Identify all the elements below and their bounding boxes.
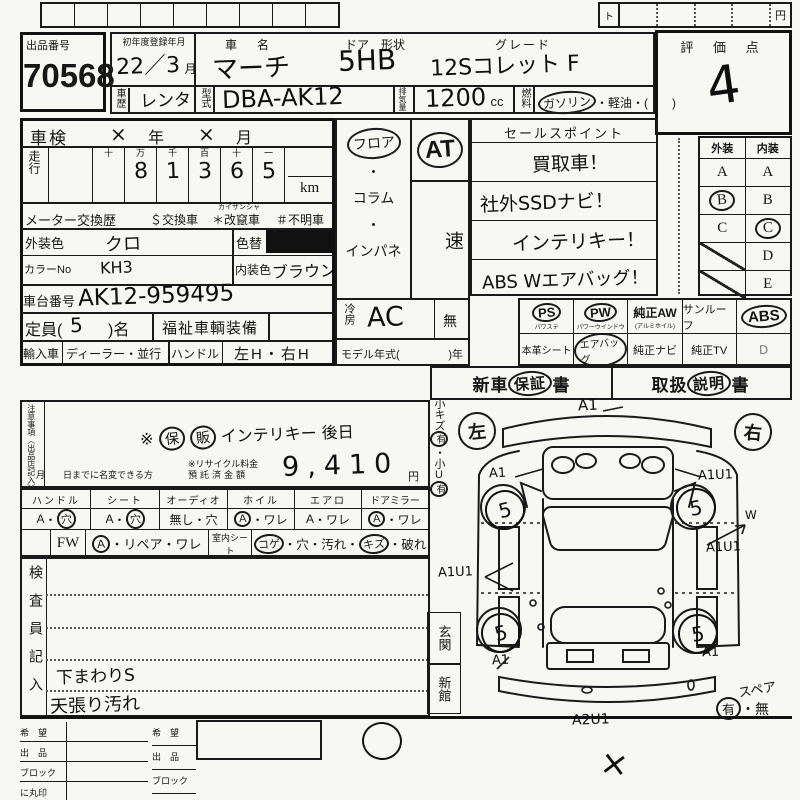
divider	[152, 312, 154, 340]
mileage-cell-blank	[48, 146, 93, 202]
opt: ワレ	[326, 511, 350, 528]
sales-line-text: ABS Wエアバッグ！	[482, 263, 649, 295]
fw-a-circled: A	[92, 534, 111, 553]
fuel-gasoline-circled: ガソリン	[537, 89, 596, 116]
small-scratch-strip: 小キズ有・小U有	[430, 398, 448, 578]
opt: A	[306, 512, 314, 526]
cond-aero-options: A・ワレ	[295, 509, 362, 529]
divider	[20, 340, 335, 342]
digit-header: 一	[253, 146, 284, 159]
block-row-label: ブロック	[152, 770, 196, 794]
sep: ・	[45, 511, 57, 528]
note-ho-circled: 保	[157, 425, 185, 452]
grade-ext-D-slashed	[700, 243, 746, 270]
aircon-none: 無	[443, 311, 457, 331]
cond-blank-cell	[22, 530, 51, 557]
mileage-cell: 十	[93, 146, 125, 202]
recycle-fee-value: 9,410	[281, 448, 399, 483]
seat-opt: ・穴・	[284, 534, 322, 553]
sales-line-text: インテリキー！	[512, 225, 646, 257]
equip-d-mark: D	[759, 342, 769, 356]
block-choice-group-2: 希 望 出 品 ブロック に丸印	[152, 722, 196, 800]
equip-navi-label: 純正ナビ	[633, 342, 677, 358]
shift-column: コラム	[337, 185, 410, 212]
opt-circled: 穴	[56, 508, 76, 529]
score-box: 評 価 点 4	[655, 30, 792, 135]
sep: ・	[314, 511, 326, 528]
equip-abs: ABS	[737, 300, 790, 333]
equip-pw: PW パワーウインドウ	[574, 300, 628, 333]
color-change-label: 色替	[236, 233, 262, 252]
bottom-cross-mark: ×	[597, 742, 631, 786]
dot: ・	[741, 701, 755, 717]
mileage-cell: 十 6	[221, 146, 253, 202]
car-name-value: マーチ	[211, 47, 290, 87]
damage-rear-right: A1	[702, 645, 720, 661]
displacement-unit: cc	[491, 94, 504, 109]
equip-aw: 純正AW (アルミホイル)	[628, 300, 682, 333]
divider	[20, 202, 335, 204]
capacity-pre: 定員(	[25, 316, 62, 340]
grade-int-E: E	[746, 271, 791, 298]
top-price-strip: ト 円	[598, 2, 792, 28]
equip-airbag-circled: エアバッグ	[573, 331, 628, 369]
divider	[20, 312, 335, 314]
first-reg-value: 22／3 月	[116, 48, 196, 80]
inspector-note-2: 天張り汚れ	[50, 689, 141, 718]
opt-circled: 穴	[125, 508, 145, 529]
block-row-label: ブロック	[20, 762, 66, 781]
equip-airbag: エアバッグ	[574, 334, 628, 365]
equip-ps-sub: パワステ	[535, 322, 559, 331]
divider	[513, 85, 515, 114]
warranty-pre: 新車	[472, 371, 508, 396]
small-dent-yes-circled: 有	[429, 480, 448, 497]
cond-header-wheel: ホイル	[228, 490, 295, 508]
sep: ・	[252, 511, 264, 528]
block-row-label: 希 望	[152, 722, 196, 746]
sales-line: ABS Wエアバッグ！	[472, 259, 656, 298]
top-grid-cell	[75, 4, 108, 26]
model-code-value: DBA-AK12	[222, 82, 345, 114]
block-row-cell	[66, 722, 148, 741]
grade-ext-A: A	[700, 159, 746, 186]
color-no-value: KH3	[100, 257, 133, 277]
auction-sheet: ト 円 出品番号 70568 初年度登録年月 22／3 月 車歴 レンタ 車 名…	[0, 0, 800, 800]
shaken-year-mark: ×	[110, 122, 128, 147]
equip-pw-sub: パワーウインドウ	[577, 322, 625, 331]
equip-d: D	[737, 334, 790, 365]
auction-number-label: 出品番号	[23, 35, 103, 55]
handle-label: ハンドル	[171, 345, 219, 362]
meter-option-unknown: ＃不明車	[276, 211, 324, 228]
displacement-label: 排気量	[397, 87, 408, 113]
sep: ・	[386, 511, 398, 528]
manual-circled: 説明	[687, 369, 733, 397]
top-grid-cell	[273, 4, 306, 26]
block-row-cell	[66, 782, 148, 800]
digit-value: 8	[133, 159, 148, 184]
equip-aw-label: 純正AW	[633, 304, 676, 321]
divider	[288, 176, 333, 177]
digit-header: 十	[221, 146, 252, 159]
import-label: 輸入車	[23, 345, 59, 362]
aircon-value: AC	[366, 301, 404, 333]
inspector-line	[46, 594, 428, 596]
top-grid-cell	[174, 4, 207, 26]
capacity-value: 5	[70, 313, 84, 337]
top-price-cell	[733, 4, 771, 26]
fuel-label: 燃料	[517, 88, 532, 114]
equip-sunroof: サンルーフ	[683, 300, 737, 333]
seat-opt-circled: コゲ	[253, 532, 284, 554]
small-scratch-yes-circled: 有	[429, 430, 448, 447]
cond-header-audio: オーディオ	[160, 490, 228, 508]
interior-seat-label: 室内シート	[209, 530, 252, 557]
block-row-label: 出 品	[152, 746, 196, 770]
history-value: レンタ	[140, 85, 192, 112]
grade-ext-B-circled: B	[709, 189, 736, 212]
displacement-number: 1200	[425, 83, 487, 113]
seat-opt: ・	[346, 534, 359, 553]
color-no-label: カラーNo	[24, 261, 71, 277]
equip-leather: 本革シート	[520, 334, 574, 365]
opt: A	[105, 512, 113, 526]
top-grid	[40, 2, 340, 28]
sales-line-text: 社外SSDナビ！	[480, 186, 615, 218]
block-row-label: に丸印	[152, 794, 196, 800]
digit-header: 十	[93, 146, 124, 159]
shift-floor-circled: フロア	[345, 126, 401, 160]
sales-line: 買取車！	[472, 142, 656, 181]
shift-dot: ・	[337, 159, 410, 186]
speed-box: 速	[410, 180, 470, 300]
digit-header: 百	[189, 146, 220, 159]
history-label: 車歴	[112, 88, 127, 112]
small-dent-label: 小U	[433, 458, 445, 481]
opt: A	[36, 512, 44, 526]
car-diagram	[455, 395, 795, 720]
block-row-cell	[66, 762, 148, 781]
history-divider	[128, 88, 130, 114]
divider	[62, 340, 63, 366]
divider	[168, 340, 170, 366]
equip-abs-circled: ABS	[740, 303, 787, 329]
mileage-unit: km	[300, 180, 319, 197]
mileage-cell: 万 8	[125, 146, 157, 202]
top-grid-cell	[42, 4, 75, 26]
damage-right-side: A1U1	[706, 539, 741, 555]
aircon-box: 冷房 AC 無	[335, 298, 470, 340]
shaken-month-unit: 月	[236, 124, 252, 148]
equip-navi: 純正ナビ	[628, 334, 682, 365]
grade-int-C-circled: C	[754, 217, 781, 240]
divider	[268, 312, 270, 340]
top-price-cell	[658, 4, 696, 26]
dotted-separator	[678, 138, 680, 294]
inspector-side-label: 検査員記入	[26, 565, 46, 715]
grade-grid: 外装 内装 A A B B C C D E	[698, 136, 792, 296]
cond-header-seat: シート	[91, 490, 160, 508]
dot: ・	[433, 447, 445, 458]
model-year-post: )年	[448, 346, 463, 362]
divider	[222, 340, 223, 366]
import-options: ディーラー・並行	[66, 345, 161, 362]
auction-number-box: 出品番号 70568	[20, 32, 106, 112]
grade-ext-E-slashed	[700, 271, 746, 298]
deposit-label: 預託済金額	[188, 468, 248, 481]
cond-header-handle: ハンドル	[22, 490, 91, 508]
damage-front: A1	[578, 396, 598, 415]
cond-seat-options: A・穴	[91, 509, 160, 529]
top-price-cell	[620, 4, 658, 26]
grade-int-D: D	[746, 243, 791, 270]
displacement-value: 1200 cc	[425, 84, 504, 112]
warranty-doc: 新車保証書	[432, 368, 611, 398]
warranty-circled: 保証	[508, 369, 554, 397]
digit-value: 6	[229, 159, 244, 184]
sep: ・	[114, 511, 126, 528]
grade-ext-C: C	[700, 215, 746, 242]
damage-rear: A2U1	[572, 711, 610, 728]
int-color-value: ブラウン	[272, 257, 337, 283]
grade-value: 12Sコレット F	[429, 45, 580, 82]
at-box: AT	[410, 118, 470, 182]
block-row-label: 希 望	[20, 722, 66, 741]
equip-pw-circled: PW	[584, 301, 618, 322]
mileage-cell: 一 5	[253, 146, 285, 202]
digit-value: 3	[197, 159, 212, 184]
mileage-label: 走行	[26, 150, 43, 200]
chassis-value: AK12-959495	[78, 280, 235, 311]
meter-option-exchange: ＄交換車	[150, 211, 198, 228]
grade-int-C: C	[746, 215, 791, 242]
top-price-prefix: ト	[600, 4, 620, 26]
int-color-label: 内装色	[235, 261, 271, 278]
manual-doc: 取扱説明書	[611, 368, 790, 398]
damage-right-w: W	[745, 508, 757, 522]
chassis-label: 車台番号	[23, 291, 75, 310]
grade-int-A: A	[746, 159, 791, 186]
divider	[434, 300, 435, 338]
first-reg-label: 初年度登録年月	[114, 35, 194, 48]
first-reg-unit: 月	[184, 62, 196, 76]
divider	[393, 85, 395, 114]
notes-side-label: 注意事項〈出品店記入〉	[26, 404, 35, 488]
block-row-label: に丸印	[20, 782, 66, 800]
sep: ・	[193, 511, 205, 528]
interior-seat-options: コゲ・穴・汚れ・キズ・破れ	[252, 534, 428, 554]
grade-int-B: B	[746, 187, 791, 214]
opt: 無し	[169, 511, 193, 528]
mileage-cell: 百 3	[189, 146, 221, 202]
fw-options: A・リペア・ワレ	[86, 530, 209, 557]
inspector-note-1: 下まわりS	[56, 661, 136, 689]
digit-header: 千	[157, 146, 188, 159]
block-choice-box	[196, 720, 322, 760]
top-price-unit: 円	[771, 7, 790, 23]
mileage-digits: 十 万 8 千 1 百 3 十 6 一 5	[48, 146, 288, 202]
equip-sunroof-label: サンルーフ	[683, 301, 736, 333]
sales-line: インテリキー！	[472, 220, 656, 259]
rename-deadline-label: 月 日までに名変できる方	[36, 468, 153, 481]
top-grid-cell	[141, 4, 174, 26]
damage-rear-left: A1	[492, 653, 510, 669]
spare-no: 無	[755, 701, 769, 717]
shaken-month-mark: ×	[198, 122, 216, 147]
top-price-cell	[696, 4, 734, 26]
sales-points-title: セールスポイント	[472, 120, 656, 142]
fw-rest: ・リペア・ワレ	[111, 534, 202, 553]
opt: 穴	[206, 511, 218, 528]
shaken-year-unit: 年	[148, 124, 164, 148]
score-value: 4	[654, 47, 792, 125]
digit-value: 5	[261, 159, 276, 184]
seat-opt: 汚れ	[321, 534, 346, 553]
block-choice-circle-mark	[360, 720, 404, 762]
speed-label: 速	[445, 227, 464, 254]
manual-pre: 取扱	[651, 371, 687, 396]
block-row-cell	[66, 742, 148, 761]
equip-ps: PS パワステ	[520, 300, 574, 333]
digit-header: 万	[125, 146, 156, 159]
bottom-separator	[20, 716, 792, 719]
sales-points-box: セールスポイント 買取車！ 社外SSDナビ！ インテリキー！ ABS Wエアバッ…	[470, 118, 658, 296]
grade-grid-ext-header: 外装	[700, 138, 746, 158]
handle-options: 左H・右H	[234, 343, 311, 364]
grade-ext-B: B	[700, 187, 746, 214]
first-reg-handwritten: 22／3	[115, 47, 180, 81]
small-scratch-label: 小キズ	[433, 398, 445, 431]
note-han-circled: 販	[188, 424, 216, 451]
note-asterisk: ※	[140, 429, 154, 448]
model-code-label: 型式	[197, 88, 212, 114]
equip-tv: 純正TV	[683, 334, 737, 365]
warranty-post: 書	[553, 371, 571, 396]
cond-handle-options: A・穴	[22, 509, 91, 529]
cond-mirror-options: A・ワレ	[362, 509, 428, 529]
condition-table: ハンドル シート オーディオ ホイル エアロ ドアミラー A・穴 A・穴 無し・…	[20, 488, 430, 557]
capacity-post: )名	[108, 316, 129, 340]
mileage-cell: 千 1	[157, 146, 189, 202]
top-grid-cell	[207, 4, 240, 26]
manual-post: 書	[732, 371, 750, 396]
equip-aw-sub: (アルミホイル)	[635, 321, 675, 330]
recycle-fee-unit: 円	[408, 468, 419, 484]
shift-panel: インパネ	[337, 238, 410, 265]
top-grid-cell	[108, 4, 141, 26]
top-grid-cell	[240, 4, 273, 26]
opt-circled: A	[234, 510, 252, 527]
shift-dot2: ・	[337, 212, 410, 239]
cond-audio-options: 無し・穴	[160, 509, 228, 529]
sales-line: 社外SSDナビ！	[472, 181, 656, 220]
auction-number-value: 70568	[23, 57, 103, 95]
digit-value: 1	[165, 159, 180, 184]
cond-wheel-options: A・ワレ	[228, 509, 295, 529]
divider	[232, 228, 234, 255]
divider	[533, 85, 535, 114]
damage-front-left: A1	[489, 466, 507, 482]
equipment-grid: PS パワステ PW パワーウインドウ 純正AW (アルミホイル) サンルーフ …	[518, 298, 792, 366]
inspector-side-strip: 検査員記入	[22, 559, 47, 715]
color-change-filled-box	[266, 230, 332, 253]
aircon-label: 冷房	[341, 303, 357, 339]
inspector-line	[46, 627, 428, 629]
equip-leather-label: 本革シート	[522, 342, 572, 357]
divider	[213, 85, 215, 114]
equip-tv-label: 純正TV	[691, 342, 727, 358]
divider	[20, 255, 335, 256]
model-year-pre: モデル年式(	[341, 346, 400, 362]
opt: ワレ	[264, 511, 288, 528]
block-choice-group-1: 希 望 出 品 ブロック に丸印	[20, 722, 148, 800]
at-circled: AT	[416, 130, 465, 169]
model-year-box: モデル年式( )年	[335, 338, 470, 366]
equip-ps-circled: PS	[531, 301, 562, 322]
block-row-label: 出 品	[20, 742, 66, 761]
opt-circled: A	[368, 510, 386, 527]
meter-history-label: メーター交換歴	[25, 210, 116, 229]
top-grid-cell	[306, 4, 338, 26]
door-shape-value: 5HB	[337, 43, 396, 78]
damage-left-side: A1U1	[438, 564, 473, 580]
opt: ワレ	[398, 511, 422, 528]
damage-front-right: A1U1	[698, 467, 733, 483]
welfare-label: 福祉車輌装備	[162, 317, 258, 338]
cond-header-aero: エアロ	[295, 490, 362, 508]
cond-header-mirror: ドアミラー	[362, 490, 428, 508]
ext-color-value: クロ	[105, 229, 142, 256]
header-divider	[110, 85, 655, 87]
shift-box: フロア ・ コラム ・ インパネ	[335, 118, 412, 300]
fw-label: FW	[51, 530, 86, 557]
seat-opt-circled: キズ	[358, 532, 389, 554]
note-intellikey-text: インテリキー 後日	[220, 422, 354, 446]
ext-color-label: 外装色	[25, 233, 64, 252]
meter-option-tampered: ＊改竄車	[212, 211, 260, 228]
seat-opt: ・破れ	[389, 534, 427, 553]
grade-grid-int-header: 内装	[746, 138, 791, 158]
divider	[413, 85, 415, 114]
sales-line-text: 買取車！	[532, 148, 609, 178]
